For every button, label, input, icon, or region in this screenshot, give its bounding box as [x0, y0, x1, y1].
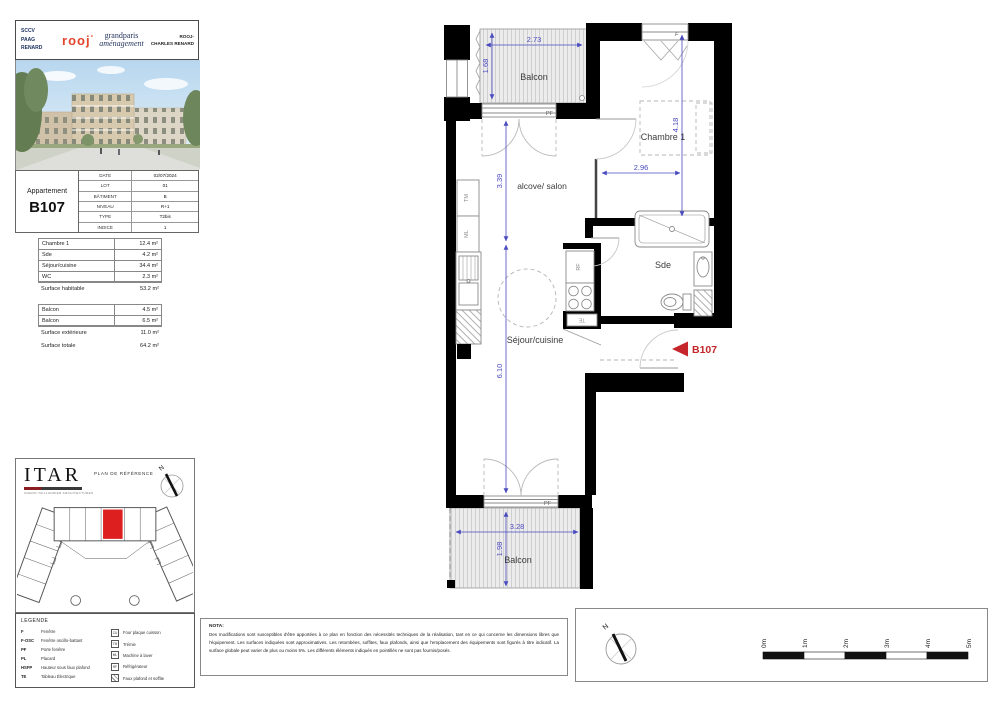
refplan-stair-left [71, 596, 81, 606]
burner [582, 286, 592, 296]
scale-label: 0m [761, 639, 768, 648]
apartment-info-row: DATE 02/07/2024 [79, 171, 198, 181]
title-block-logos: SCCV PAAG RENARD rooj° grandparis aménag… [15, 20, 199, 60]
tag-pf-top: PF [546, 111, 554, 117]
bath-hatched-unit [694, 290, 712, 316]
surface-room-area: 12.4 m² [115, 238, 162, 249]
bathroom-fixtures [635, 211, 712, 316]
scale-compass-box: N 0m 1m 2m 3m 4m 5m [575, 608, 988, 682]
legend-label: Hauteur sous faux plafond [41, 665, 105, 670]
surface-room-area: 6.5 m² [115, 315, 162, 326]
legend-label: Fenêtre [41, 629, 105, 634]
scale-label: 2m [843, 639, 850, 648]
scale-label: 5m [966, 639, 973, 648]
plan-sheet: SCCV PAAG RENARD rooj° grandparis aménag… [0, 0, 1000, 707]
itar-logo: ITAR [24, 465, 81, 485]
architect-block: ITAR INGRID TAILLANDIER ARCHITECTURES PL… [15, 458, 195, 613]
legend-row: PL Placard [21, 654, 105, 663]
surface-total-area: 53.2 m² [115, 283, 162, 295]
dim-balcon-top-w: 2.73 [527, 35, 542, 44]
dim-chambre-h: 4.18 [671, 118, 680, 133]
surface-total-name: Surface extérieure [38, 327, 115, 339]
legend-row: F Fenêtre [21, 627, 105, 636]
wall-stub [457, 344, 471, 359]
floor-plan-svg: 2.73 1.68 3.39 6.10 4.18 2.96 3.28 1.98 … [430, 15, 770, 605]
legend-abbr: F-OSC [21, 638, 41, 643]
room-balcon-top: Balcon [520, 72, 548, 82]
entrance-arrow [672, 342, 688, 357]
room-alcove: alcove/ salon [517, 181, 567, 191]
apartment-info-row: BÂTIMENT B [79, 192, 198, 202]
owner-line: SCCV [21, 27, 57, 36]
room-chambre: Chambre 1 [641, 132, 686, 142]
info-key: BÂTIMENT [79, 192, 132, 201]
nota-text: Des modifications sont susceptibles d'êt… [209, 631, 559, 655]
surface-row: Séjour/cuisine 34.4 m² [38, 260, 162, 271]
appliance-hatched [456, 310, 481, 344]
legend-symbol-box: ML [111, 651, 119, 659]
legend-label: Faux plafond et soffite [123, 676, 189, 681]
apartment-info-row: NIVEAU R+1 [79, 202, 198, 212]
tag-rf: RF [576, 263, 582, 271]
legend-label: Placard [41, 656, 105, 661]
exterior-surfaces: Balcon 4.5 m² Balcon 6.5 m² [38, 304, 162, 326]
legend-label: Trémie [123, 642, 189, 647]
owner-line: RENARD [21, 44, 57, 53]
legend-label: Porte fenêtre [41, 647, 105, 652]
apartment-number: B107 [29, 199, 65, 216]
tag-pf-bottom: PF [544, 501, 552, 507]
north-label: N [602, 623, 610, 632]
itar-subtitle: INGRID TAILLANDIER ARCHITECTURES [24, 491, 93, 495]
surface-habitable-row: Surface habitable 53.2 m² [38, 282, 162, 295]
scale-bar: 0m 1m 2m 3m 4m 5m [761, 639, 973, 659]
legend-label: Machine à laver [123, 653, 189, 658]
apartment-info-row: INDICE 1 [79, 223, 198, 232]
legend-abbr: TE [21, 674, 41, 679]
surface-total-name: Surface totale [38, 339, 115, 352]
apartment-info-rows: DATE 02/07/2024 LOT 01 BÂTIMENT B NIVEAU… [79, 171, 198, 232]
legend-row: HSFP Hauteur sous faux plafond [21, 663, 105, 672]
info-value: 1 [132, 223, 198, 232]
dim-balcon-bottom-h: 1.98 [495, 542, 504, 557]
reference-plan-label: PLAN DE RÉFÉRENCE [94, 471, 153, 476]
surface-room-area: 2.3 m² [115, 271, 162, 282]
north-compass: N [602, 623, 636, 664]
apartment-info-table: Appartement B107 DATE 02/07/2024 LOT 01 … [15, 170, 199, 233]
surface-total-area: 11.0 m² [115, 327, 162, 339]
apartment-info-row: TYPE T2bis [79, 212, 198, 222]
dim-sejour-h: 6.10 [495, 364, 504, 379]
legend: LEGENDE F Fenêtre F-OSC Fenêtre oscillo-… [15, 613, 195, 688]
burner [569, 286, 579, 296]
scale-label: 1m [802, 639, 809, 648]
soffit-line [563, 329, 601, 345]
scale-label: 4m [925, 639, 932, 648]
itar-logo-bar [24, 487, 82, 490]
legend-symbol-row-hatch: Faux plafond et soffite [111, 673, 189, 684]
info-key: NIVEAU [79, 202, 132, 211]
highlighted-unit-b107 [103, 510, 123, 539]
balcony-top-railing [476, 31, 480, 95]
info-value: 01 [132, 181, 198, 190]
legend-row: TE Tableau Électrique [21, 672, 105, 681]
surface-room-name: Sde [38, 249, 115, 260]
legend-abbreviations: F Fenêtre F-OSC Fenêtre oscillo-battant … [21, 627, 105, 684]
dim-alcove-h: 3.39 [495, 174, 504, 189]
owner-line: PAAG [21, 36, 57, 45]
surface-room-name: Chambre 1 [38, 238, 115, 249]
legend-title: LEGENDE [21, 618, 189, 624]
surface-row: WC 2.3 m² [38, 271, 162, 282]
legend-abbr: PF [21, 647, 41, 652]
info-key: DATE [79, 171, 132, 180]
legend-symbol-box: RF [111, 663, 119, 671]
surfaces-table: Chambre 1 12.4 m² Sde 4.2 m² Séjour/cuis… [38, 238, 162, 352]
legend-symbols: CU Four plaque cuisson TM Trémie ML Mach… [111, 627, 189, 684]
north-label: N [158, 464, 166, 473]
legend-symbol-box: CU [111, 629, 119, 637]
tag-ml: ML [464, 230, 470, 238]
unit-number-marker: B107 [692, 344, 717, 356]
balcony-bottom-floor [450, 508, 580, 588]
surface-total-area: 64.2 m² [115, 339, 162, 352]
balcony-post [447, 580, 455, 588]
legend-label: Tableau Électrique [41, 674, 105, 679]
floor-plan: 2.73 1.68 3.39 6.10 4.18 2.96 3.28 1.98 … [430, 15, 770, 605]
window-swing-mark [644, 41, 678, 60]
surface-room-area: 4.5 m² [115, 304, 162, 315]
surface-row: Sde 4.2 m² [38, 249, 162, 260]
surface-room-name: Balcon [38, 315, 115, 326]
chambre-door-arc [596, 119, 636, 159]
info-value: R+1 [132, 202, 198, 211]
legend-abbr: PL [21, 656, 41, 661]
legend-abbr: F [21, 629, 41, 634]
surface-grand-total-row: Surface totale 64.2 m² [38, 339, 162, 352]
surface-row: Chambre 1 12.4 m² [38, 238, 162, 249]
tag-te: TE [578, 317, 585, 323]
surface-room-name: Séjour/cuisine [38, 260, 115, 271]
surface-room-area: 4.2 m² [115, 249, 162, 260]
surface-exterior-total-row: Surface extérieure 11.0 m² [38, 326, 162, 339]
info-key: LOT [79, 181, 132, 190]
apartment-id: Appartement B107 [16, 171, 79, 232]
legend-label: Four plaque cuisson [123, 630, 189, 635]
project-name: ROOJ- CHARLES RENARD [144, 33, 198, 48]
info-value: T2bis [132, 212, 198, 221]
surface-total-name: Surface habitable [38, 283, 115, 295]
dim-balcon-bottom-w: 3.28 [510, 522, 525, 531]
legend-label: Fenêtre oscillo-battant [41, 638, 105, 643]
nota-box: NOTA: Des modifications sont susceptible… [200, 618, 568, 676]
surface-row: Balcon 4.5 m² [38, 304, 162, 315]
surface-room-name: WC [38, 271, 115, 282]
tag-tm: TM [464, 194, 470, 202]
interior-surfaces: Chambre 1 12.4 m² Sde 4.2 m² Séjour/cuis… [38, 238, 162, 282]
apartment-info-row: LOT 01 [79, 181, 198, 191]
legend-label: Réfrigérateur [123, 664, 189, 669]
rooj-logo: rooj° [57, 33, 99, 48]
nota-title: NOTA: [209, 624, 559, 629]
room-sde: Sde [655, 260, 671, 270]
room-sejour: Séjour/cuisine [507, 335, 564, 345]
legend-symbol-row: ML Machine à laver [111, 650, 189, 661]
window-arc [642, 41, 688, 87]
window-swing-mark [661, 41, 687, 60]
dim-chambre-w: 2.96 [634, 163, 649, 172]
legend-symbol-row: TM Trémie [111, 638, 189, 649]
owner-name: SCCV PAAG RENARD [16, 27, 57, 53]
info-key: INDICE [79, 223, 132, 232]
drain-marker [580, 96, 585, 101]
sink-basin [459, 283, 478, 305]
scale-compass-svg: N 0m 1m 2m 3m 4m 5m [576, 609, 987, 681]
info-key: TYPE [79, 212, 132, 221]
burner [569, 299, 579, 309]
building-rendering-image [15, 60, 199, 170]
info-value: B [132, 192, 198, 201]
surface-room-name: Balcon [38, 304, 115, 315]
legend-symbol-row: RF Réfrigérateur [111, 661, 189, 672]
apartment-label: Appartement [27, 188, 67, 195]
porte-fenetre-top [482, 104, 556, 117]
reference-plan-thumbnail [17, 500, 193, 611]
info-value: 02/07/2024 [132, 171, 198, 180]
legend-abbr: HSFP [21, 665, 41, 670]
building-photo-svg [16, 60, 200, 170]
toilet-tank [683, 294, 691, 310]
hatch-symbol [111, 674, 119, 682]
surface-room-area: 34.4 m² [115, 260, 162, 271]
legend-row: F-OSC Fenêtre oscillo-battant [21, 636, 105, 645]
refplan-stair-right [129, 596, 139, 606]
room-balcon-bottom: Balcon [504, 555, 532, 565]
legend-symbol-row: CU Four plaque cuisson [111, 627, 189, 638]
legend-symbol-box: TM [111, 640, 119, 648]
french-doors [482, 119, 558, 496]
grandparis-amenagement-logo: grandparis aménagement [99, 32, 144, 49]
scale-label: 3m [884, 639, 891, 648]
legend-row: PF Porte fenêtre [21, 645, 105, 654]
dim-balcon-top-h: 1.68 [481, 59, 490, 74]
dining-table [498, 269, 556, 327]
burner [582, 299, 592, 309]
surface-row: Balcon 6.5 m² [38, 315, 162, 326]
